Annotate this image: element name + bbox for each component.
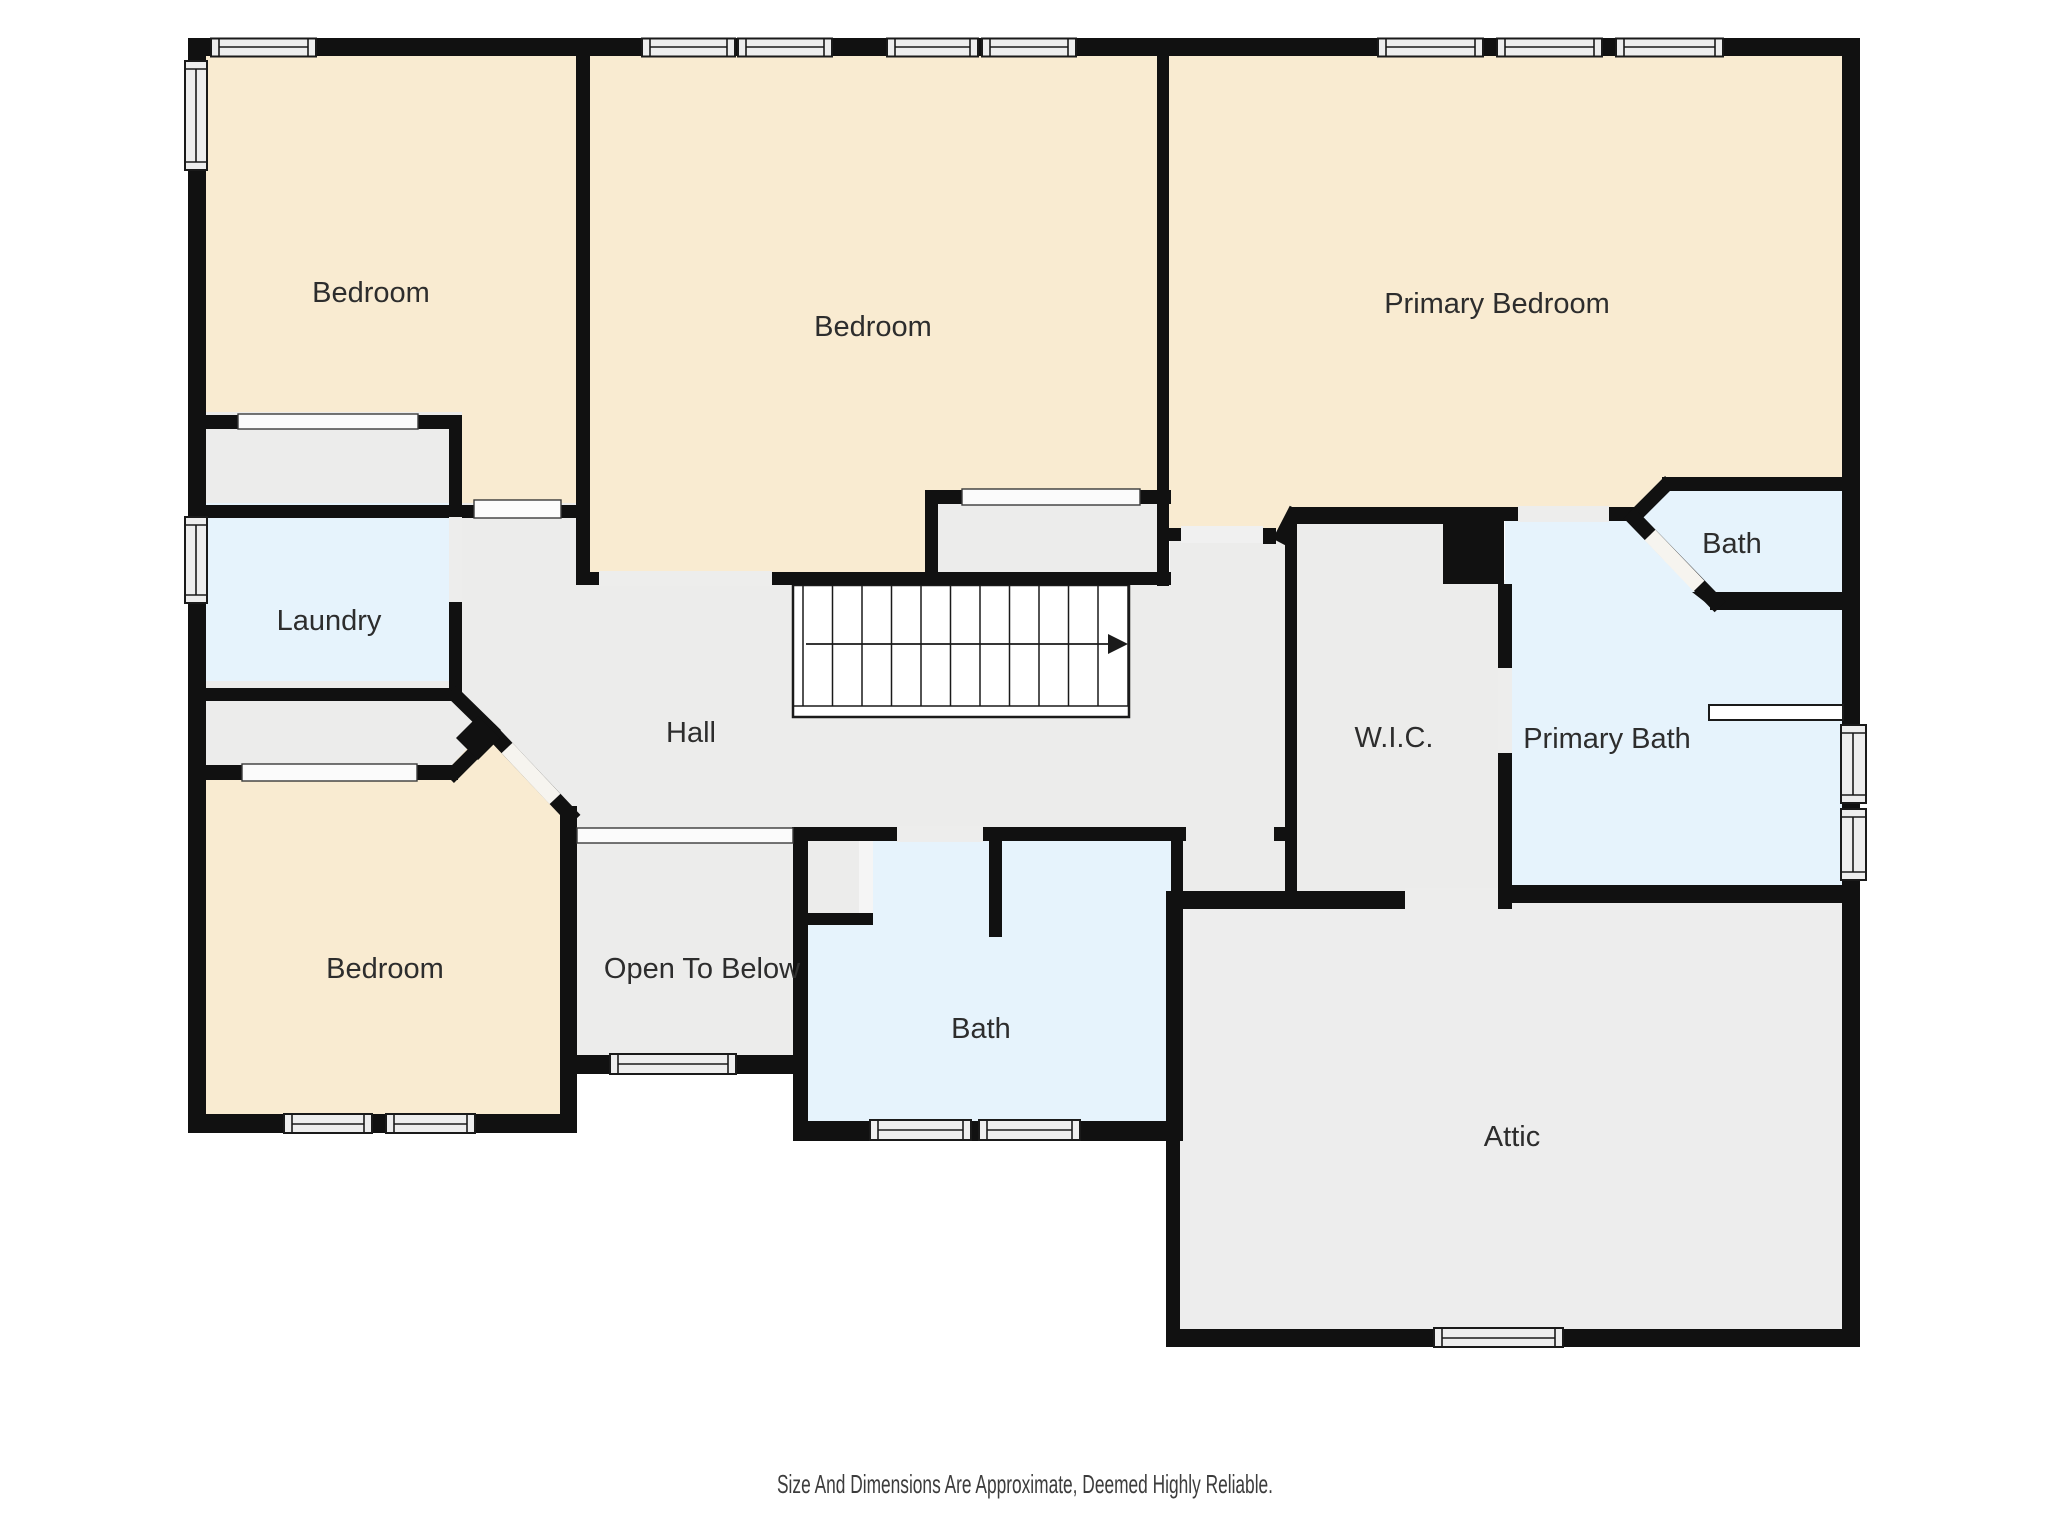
svg-text:Primary Bath: Primary Bath <box>1523 723 1691 755</box>
svg-text:Primary Bedroom: Primary Bedroom <box>1384 288 1610 320</box>
svg-text:W.I.C.: W.I.C. <box>1355 722 1434 754</box>
svg-text:Size And Dimensions Are Approx: Size And Dimensions Are Approximate, Dee… <box>777 1469 1273 1499</box>
svg-text:Bedroom: Bedroom <box>312 277 430 309</box>
svg-text:Bedroom: Bedroom <box>326 953 444 985</box>
svg-text:Laundry: Laundry <box>277 605 382 637</box>
svg-text:Hall: Hall <box>666 717 716 749</box>
svg-text:Bath: Bath <box>1702 528 1762 560</box>
svg-text:Bedroom: Bedroom <box>814 311 932 343</box>
svg-text:Bath: Bath <box>951 1013 1011 1045</box>
svg-text:Open To Below: Open To Below <box>604 953 801 985</box>
svg-text:Attic: Attic <box>1484 1121 1540 1153</box>
